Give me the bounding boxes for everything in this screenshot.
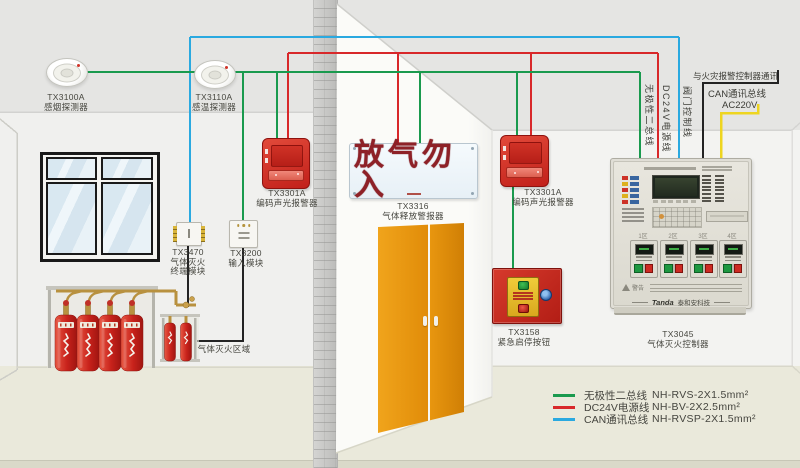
zone-label: 1区 bbox=[630, 231, 656, 240]
valve-wire-label: 阀门控制线 bbox=[681, 86, 694, 139]
start-button bbox=[518, 281, 529, 290]
zone-stop-button bbox=[675, 264, 684, 273]
zone-label: 3区 bbox=[690, 231, 716, 240]
emergency-start-stop-button bbox=[492, 268, 562, 324]
zone-label: 2区 bbox=[660, 231, 686, 240]
warning-triangle-icon bbox=[622, 284, 630, 291]
lcd-function-keys bbox=[653, 200, 696, 203]
emergency-button-label: TX3158紧急启停按钮 bbox=[498, 328, 551, 347]
window-pane bbox=[101, 182, 153, 255]
legend-swatch-red bbox=[553, 406, 575, 409]
zone-control-module bbox=[690, 240, 718, 278]
legend-swatch-green bbox=[553, 394, 575, 397]
zone-start-button bbox=[634, 264, 643, 273]
alarm-right-label: TX3301A编码声光报警器 bbox=[512, 188, 574, 207]
zone-control-module bbox=[660, 240, 688, 278]
power-wire-label: DC24V电源线 bbox=[660, 85, 673, 153]
window bbox=[40, 152, 160, 262]
zone-start-button bbox=[723, 264, 732, 273]
terminal-module-label: TX3470气体灭火终端模块 bbox=[170, 248, 205, 277]
fire-panel-comm-label: 与火灾报警控制器通讯 bbox=[660, 70, 778, 82]
button-inner-panel bbox=[507, 277, 539, 317]
window-pane bbox=[46, 157, 97, 180]
zone-control-module bbox=[630, 240, 658, 278]
panel-indicator-column bbox=[702, 175, 728, 204]
protected-area-label: 气体灭火区域 bbox=[198, 345, 251, 355]
ac-power-label: AC220V bbox=[722, 100, 757, 111]
zone-label: 4区 bbox=[719, 231, 745, 240]
panel-warning-note: 警告 bbox=[622, 283, 644, 292]
panel-keypad bbox=[652, 207, 702, 228]
stop-button bbox=[518, 304, 529, 313]
panel-lcd-screen bbox=[652, 175, 700, 199]
zone-stop-button bbox=[734, 264, 743, 273]
controller-label: TX3045气体灭火控制器 bbox=[647, 330, 709, 349]
zone-start-button bbox=[694, 264, 703, 273]
panel-status-leds bbox=[622, 176, 639, 206]
smoke-detector-label: TX3100A感烟探测器 bbox=[44, 93, 88, 112]
alarm-left-label: TX3301A编码声光报警器 bbox=[256, 189, 318, 208]
panel-face: 1区 2区 3区 4区 警告 bbox=[613, 161, 749, 306]
can-bus-label: CAN通讯总线 bbox=[708, 86, 766, 100]
panel-base bbox=[614, 307, 746, 315]
input-module-label: TX3200输入模块 bbox=[228, 249, 263, 268]
release-alarm-label: TX3316气体释放警报器 bbox=[382, 202, 444, 221]
brand-logo: Tanda bbox=[652, 298, 674, 307]
heat-detector-label: TX3110A感温探测器 bbox=[192, 93, 236, 112]
panel-brand: Tanda 泰和安科技 bbox=[614, 297, 748, 307]
gas-extinguishing-controller: 1区 2区 3区 4区 警告 bbox=[610, 158, 752, 309]
zone-control-module bbox=[719, 240, 747, 278]
legend-swatch-blue bbox=[553, 418, 575, 421]
legend-row-can: CAN通讯总线 NH-RVSP-2X1.5mm² bbox=[553, 413, 756, 425]
loop-bus-wire-label: 无极性二总线 bbox=[643, 84, 656, 147]
key-switch bbox=[540, 289, 552, 301]
panel-record-slot bbox=[706, 211, 748, 222]
zone-stop-button bbox=[645, 264, 654, 273]
window-pane bbox=[46, 182, 97, 255]
zone-stop-button bbox=[705, 264, 714, 273]
zone-start-button bbox=[664, 264, 673, 273]
window-pane bbox=[101, 157, 153, 180]
gas-suppression-system-diagram: 放气勿入 bbox=[0, 0, 800, 468]
